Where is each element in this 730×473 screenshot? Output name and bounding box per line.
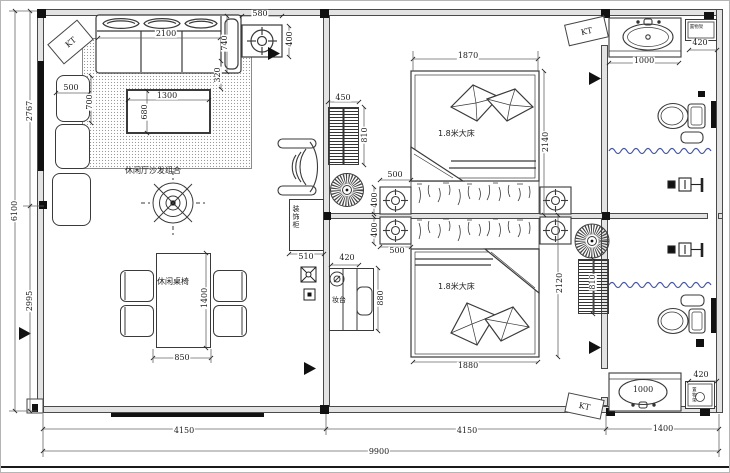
dimension-label: 500 [386, 171, 403, 179]
dimension-label: 2767 [26, 100, 34, 122]
dimension-label: 810 [361, 126, 369, 143]
toilet-bottom [658, 295, 705, 334]
ceiling-fan-icon-1 [331, 174, 364, 207]
chandelier-icon [141, 171, 205, 235]
dining-chair-2 [120, 305, 154, 337]
wall-mid-1 [323, 16, 330, 406]
dimension-label: 2100 [155, 30, 177, 38]
outlet-icon-2 [304, 289, 315, 300]
dimension-label: 1400 [652, 425, 674, 433]
bed-bottom [411, 219, 539, 357]
dimension-label: 420 [338, 254, 355, 262]
wall-top [37, 9, 723, 16]
dimension-label: 1000 [633, 57, 655, 65]
armchair-3 [52, 173, 91, 226]
shelf-top-label: 置物架 [690, 25, 704, 30]
dimension-label: 9900 [368, 448, 390, 456]
cabinet-label: 装饰柜 [292, 205, 299, 229]
shelf-box-top [685, 19, 717, 41]
bed-top-label: 1.8米大床 [438, 130, 475, 138]
dimension-label: 850 [173, 354, 190, 362]
shower-head-icon-bottom [668, 243, 702, 257]
dimension-label: 2120 [556, 272, 564, 294]
wall-mid-horizontal [330, 213, 708, 219]
washbasin-top [609, 18, 681, 57]
shelf-bottom-label: 置物架 [691, 387, 696, 403]
dimension-label: 2140 [542, 131, 550, 153]
dresser-label: 妆台 [332, 297, 346, 304]
armchair-1 [56, 75, 90, 122]
shower-curtain-top [609, 149, 711, 154]
image-bottom-rule [1, 466, 730, 468]
dimension-label: 1870 [457, 52, 479, 60]
dimension-label: 1000 [632, 386, 654, 394]
dimension-label: 400 [371, 191, 379, 208]
living-area-label: 休闲厅沙发组合 [125, 167, 181, 175]
bed-top [411, 71, 539, 213]
lounge-chair [278, 139, 318, 195]
wall-shaft-bottom [711, 298, 716, 333]
wall-door-segment-bottom [111, 413, 264, 417]
dimension-label: 400 [371, 221, 379, 238]
wall-window-segment-left [38, 61, 44, 171]
dimension-label: 510 [297, 253, 314, 261]
dimension-label: 500 [388, 247, 405, 255]
bed-bottom-label: 1.8米大床 [438, 283, 475, 291]
dimension-label: 880 [377, 289, 385, 306]
floor-plan: 休闲厅沙发组合 休闲桌椅 装饰柜 妆台 1.8米大床 1.8米大床 置物架 置物… [0, 0, 730, 473]
ac-unit-label-2: KT [564, 16, 609, 47]
dining-chair-4 [213, 305, 247, 337]
dining-label: 休闲桌椅 [157, 278, 189, 286]
armchair-2 [55, 124, 90, 169]
dimension-label: 420 [692, 371, 709, 379]
toilet-top [658, 104, 705, 144]
dining-chair-3 [213, 270, 247, 302]
shower-head-icon-top [668, 178, 702, 192]
dimension-label: 4150 [173, 427, 195, 435]
dining-table [156, 253, 211, 348]
wall-shaft-top [711, 101, 716, 128]
dimension-label: 2995 [26, 290, 34, 312]
dimension-label: 400 [286, 30, 294, 47]
wall-bottom [37, 406, 723, 413]
wall-mid-2 [601, 45, 608, 369]
coffee-table [126, 89, 211, 134]
shelf-box-bottom [685, 381, 715, 409]
dimension-label: 4150 [456, 427, 478, 435]
dimension-label: 6100 [11, 200, 19, 222]
dimension-label: 450 [334, 94, 351, 102]
dining-chair-1 [120, 270, 154, 302]
wall-right [716, 9, 723, 413]
ac-unit-label-3: KT [564, 392, 604, 419]
outlet-icon-1 [301, 267, 316, 282]
radiator-top [328, 107, 359, 165]
shower-curtain-bottom [609, 283, 711, 288]
dimension-label: 1880 [457, 362, 479, 370]
radiator-bottom [578, 259, 609, 314]
wall-mid-horizontal-b [718, 213, 723, 219]
